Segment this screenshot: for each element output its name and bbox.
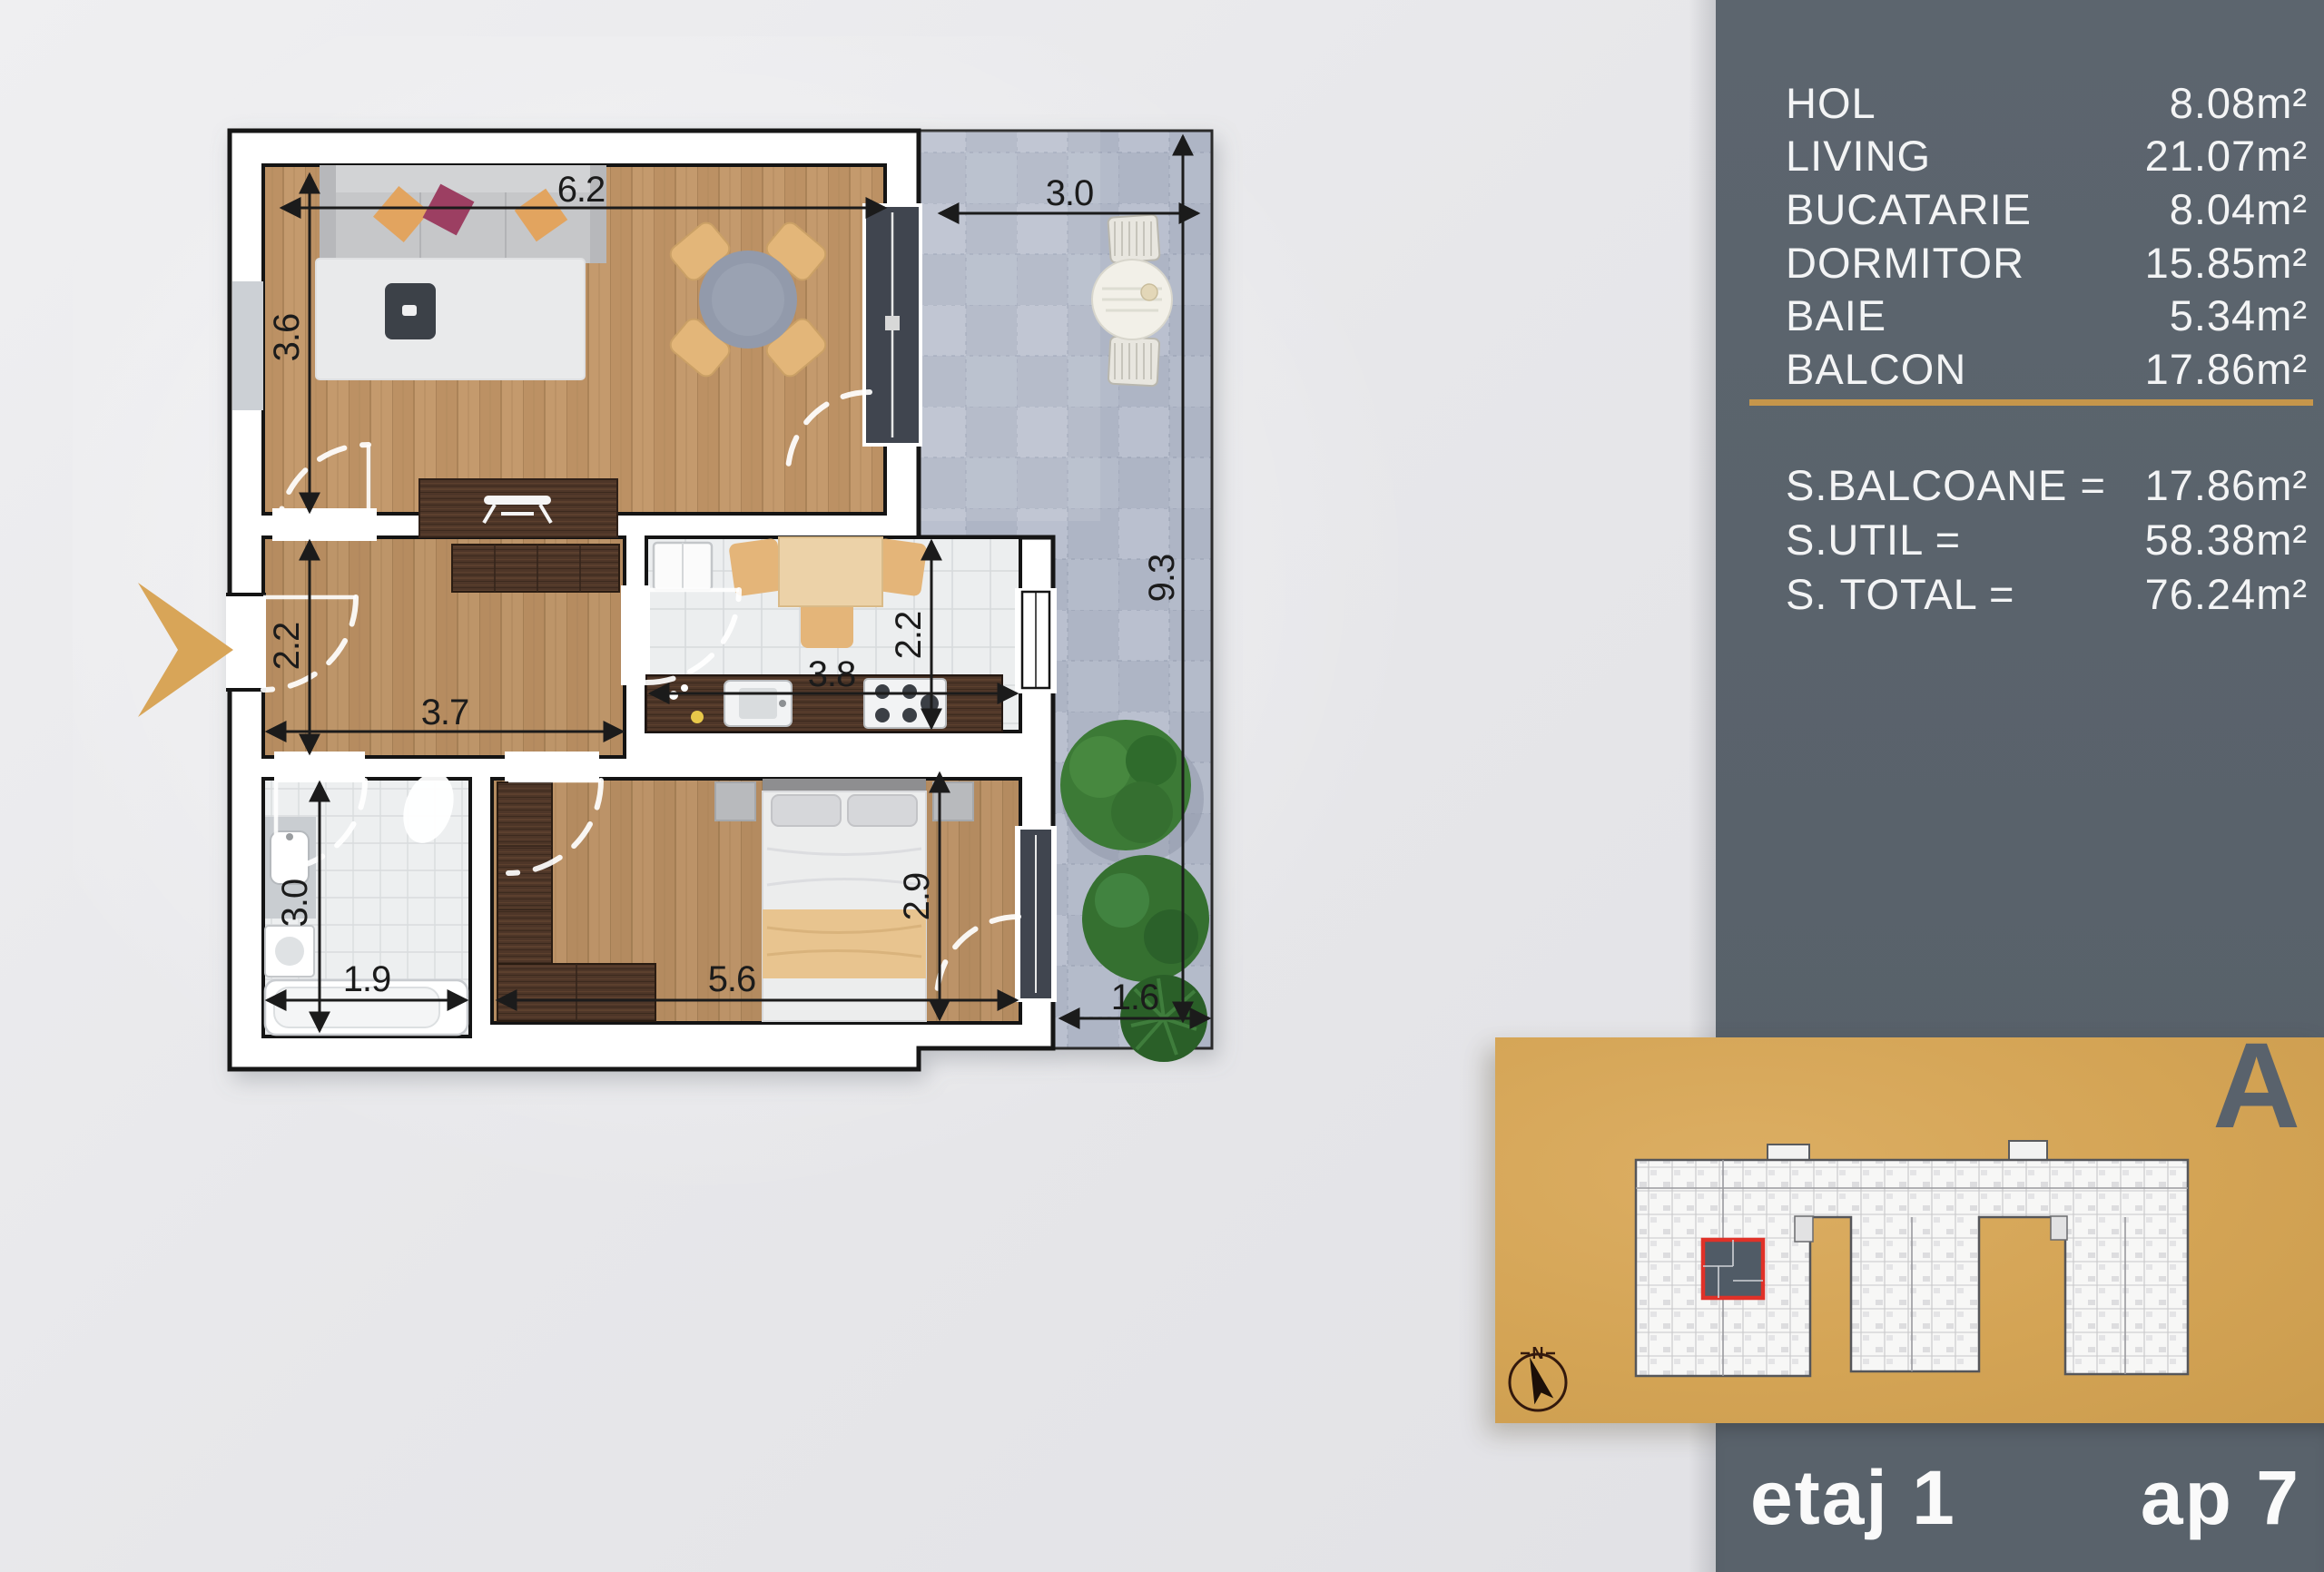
room-area: 8.08m² bbox=[2170, 78, 2308, 128]
room-row-bucatarie: BUCATARIE 8.04m² bbox=[1786, 182, 2308, 236]
room-label: DORMITOR bbox=[1786, 238, 2024, 288]
dim-bath-width: 1.9 bbox=[343, 959, 391, 999]
nightstand-left bbox=[715, 782, 755, 820]
total-value: 76.24m² bbox=[2145, 569, 2308, 619]
coffee-table bbox=[385, 283, 436, 339]
entrance-opening bbox=[226, 594, 266, 690]
room-area: 5.34m² bbox=[2170, 290, 2308, 340]
room-label: HOL bbox=[1786, 78, 1876, 128]
room-row-hol: HOL 8.08m² bbox=[1786, 76, 2308, 130]
floor-plan: 6.2 3.0 3.6 2.2 3.7 3.8 2.2 3.0 1.9 5.6 … bbox=[0, 0, 1289, 1180]
room-row-baie: BAIE 5.34m² bbox=[1786, 289, 2308, 342]
living-balcony-door bbox=[866, 207, 919, 443]
room-area: 15.85m² bbox=[2145, 238, 2308, 288]
apartment-label: ap 7 bbox=[2141, 1454, 2300, 1542]
room-area: 21.07m² bbox=[2145, 131, 2308, 181]
dim-balcony-length: 9.3 bbox=[1142, 555, 1182, 603]
total-value: 58.38m² bbox=[2145, 515, 2308, 565]
entrance-arrow-icon bbox=[138, 583, 233, 717]
living-niche bbox=[232, 281, 263, 410]
floor-bar: etaj 1 ap 7 bbox=[1716, 1423, 2324, 1572]
total-label: S.UTIL = bbox=[1786, 515, 1961, 565]
room-label: BALCON bbox=[1786, 344, 1966, 394]
hall-cabinet bbox=[452, 545, 619, 592]
gold-divider bbox=[1749, 399, 2313, 406]
compass-north-label: N bbox=[1532, 1344, 1544, 1362]
fridge bbox=[654, 543, 712, 590]
room-label: LIVING bbox=[1786, 131, 1931, 181]
dim-bedroom-width: 5.6 bbox=[708, 959, 756, 999]
dim-living-width: 6.2 bbox=[557, 170, 606, 210]
dim-bath-depth: 3.0 bbox=[275, 879, 315, 928]
room-area: 8.04m² bbox=[2170, 184, 2308, 234]
room-area-list: HOL 8.08m² LIVING 21.07m² BUCATARIE 8.04… bbox=[1786, 76, 2308, 396]
building-key-plan: N bbox=[1495, 1037, 2324, 1423]
room-area: 17.86m² bbox=[2145, 344, 2308, 394]
total-label: S. TOTAL = bbox=[1786, 569, 2015, 619]
bedroom-radiator bbox=[770, 1026, 888, 1032]
dim-balcony-width: 3.0 bbox=[1046, 173, 1094, 213]
dim-hall-width: 3.7 bbox=[421, 693, 469, 732]
dim-hall-depth: 2.2 bbox=[267, 623, 307, 671]
room-row-dormitor: DORMITOR 15.85m² bbox=[1786, 236, 2308, 290]
total-label: S.BALCOANE = bbox=[1786, 460, 2106, 510]
dim-bedroom-depth: 2.9 bbox=[897, 873, 937, 921]
kitchen-window bbox=[1022, 592, 1049, 688]
building-letter: A bbox=[2212, 1023, 2300, 1151]
compass-icon: N bbox=[1510, 1344, 1566, 1410]
total-row-balcoane: S.BALCOANE = 17.86m² bbox=[1786, 457, 2308, 512]
room-row-balcon: BALCON 17.86m² bbox=[1786, 342, 2308, 396]
total-value: 17.86m² bbox=[2145, 460, 2308, 510]
unit-locator: N A bbox=[1495, 1037, 2324, 1423]
floor-label: etaj 1 bbox=[1750, 1454, 1956, 1542]
room-label: BUCATARIE bbox=[1786, 184, 2032, 234]
bedroom-balcony-door bbox=[1020, 830, 1051, 998]
dim-balcony-end: 1.6 bbox=[1111, 978, 1159, 1017]
room-row-living: LIVING 21.07m² bbox=[1786, 130, 2308, 183]
total-row-util: S.UTIL = 58.38m² bbox=[1786, 512, 2308, 566]
tv-cabinet bbox=[419, 479, 617, 537]
dim-living-depth: 3.6 bbox=[267, 314, 307, 362]
room-label: BAIE bbox=[1786, 290, 1886, 340]
dim-kitchen-depth: 2.2 bbox=[889, 612, 929, 660]
dim-kitchen-width: 3.8 bbox=[808, 654, 856, 694]
rug bbox=[316, 259, 585, 379]
highlighted-unit bbox=[1703, 1240, 1763, 1298]
totals-list: S.BALCOANE = 17.86m² S.UTIL = 58.38m² S.… bbox=[1786, 457, 2308, 621]
total-row-total: S. TOTAL = 76.24m² bbox=[1786, 566, 2308, 621]
